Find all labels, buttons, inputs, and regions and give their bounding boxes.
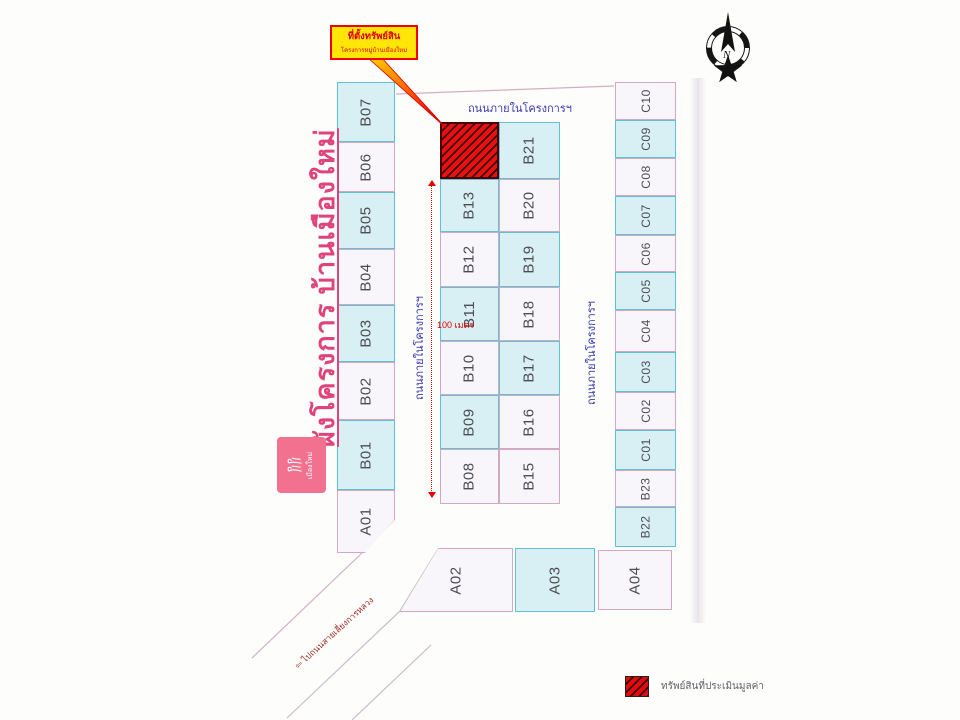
subject-callout: ที่ตั้งทรัพย์สิน โครงการหมู่บ้านเมืองใหม… [330, 25, 418, 60]
callout-subtitle: โครงการหมู่บ้านเมืองใหม่ [333, 45, 415, 55]
site-plan-page: B07B06B05B04B03B02B01A01B13B12B11B10B09B… [0, 0, 960, 720]
callout-title: ที่ตั้งทรัพย์สิน [333, 29, 415, 44]
callout-arrow [0, 0, 960, 720]
